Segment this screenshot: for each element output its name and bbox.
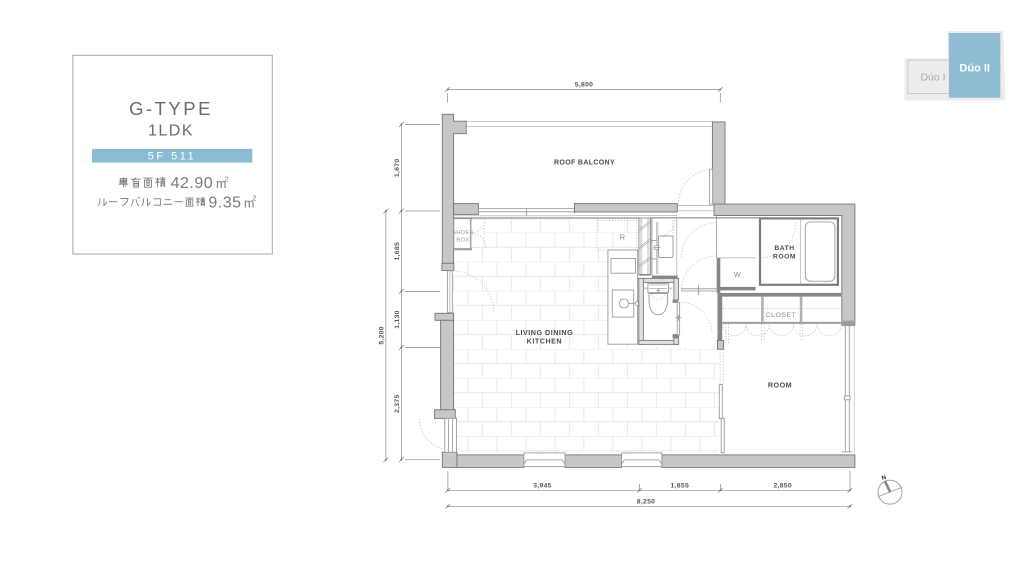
svg-text:KITCHEN: KITCHEN <box>527 336 562 345</box>
svg-text:W: W <box>734 270 742 279</box>
svg-text:CLOSET: CLOSET <box>766 312 797 319</box>
svg-text:1LDK: 1LDK <box>148 123 194 140</box>
svg-text:2: 2 <box>253 196 257 203</box>
svg-text:BATH: BATH <box>774 245 794 252</box>
svg-text:1,855: 1,855 <box>671 483 690 490</box>
svg-text:ROOM: ROOM <box>768 381 792 390</box>
svg-text:5,800: 5,800 <box>575 82 594 89</box>
svg-text:ROOM: ROOM <box>773 253 796 260</box>
svg-text:5F 511: 5F 511 <box>148 151 196 163</box>
svg-text:SHOES: SHOES <box>452 230 474 236</box>
svg-text:2,850: 2,850 <box>773 483 792 490</box>
svg-text:2: 2 <box>225 177 229 184</box>
svg-text:Dúo I: Dúo I <box>920 72 945 84</box>
svg-text:42.90: 42.90 <box>171 175 214 192</box>
svg-text:5,200: 5,200 <box>379 326 386 345</box>
svg-text:BOX: BOX <box>456 237 469 243</box>
svg-text:1,130: 1,130 <box>394 310 401 329</box>
svg-text:1,670: 1,670 <box>394 159 401 178</box>
svg-text:8,250: 8,250 <box>637 499 656 506</box>
svg-text:1,685: 1,685 <box>394 242 401 261</box>
svg-text:3,945: 3,945 <box>533 483 552 490</box>
svg-text:ROOF BALCONY: ROOF BALCONY <box>554 160 615 167</box>
svg-text:G-TYPE: G-TYPE <box>129 98 213 119</box>
svg-text:R: R <box>620 233 626 242</box>
svg-text:Dúo II: Dúo II <box>959 63 990 75</box>
svg-text:2,375: 2,375 <box>394 394 401 413</box>
svg-text:9.35: 9.35 <box>208 194 241 211</box>
